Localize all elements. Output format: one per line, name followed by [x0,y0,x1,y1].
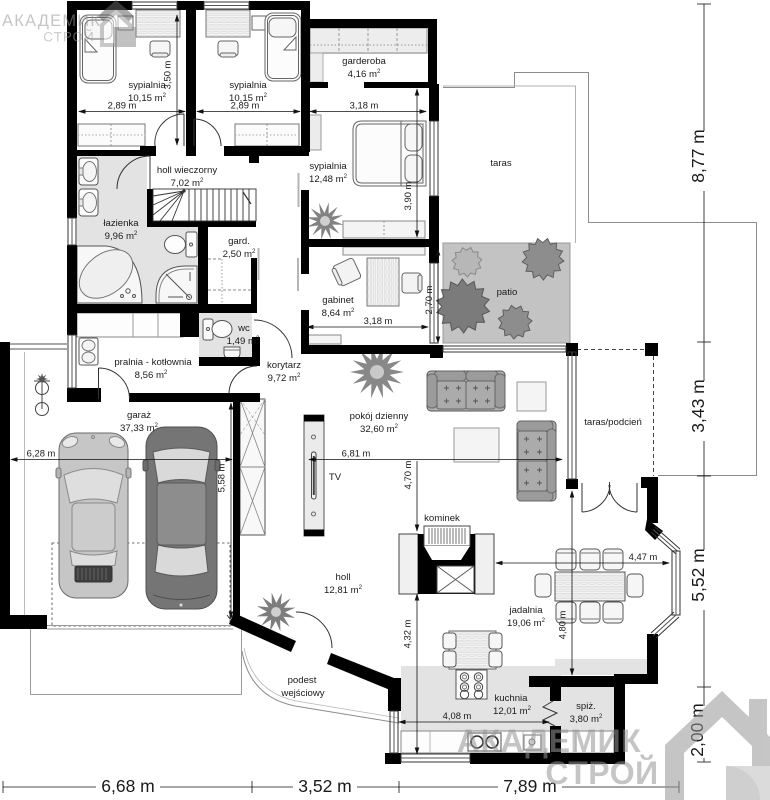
svg-text:TV: TV [329,472,342,483]
svg-text:12,81 m2: 12,81 m2 [324,585,363,596]
svg-text:5,58 m: 5,58 m [216,463,227,492]
svg-text:taras: taras [490,158,512,169]
svg-text:5,52 m: 5,52 m [688,548,708,602]
svg-text:wc: wc [237,323,250,334]
svg-text:patio: patio [497,287,518,298]
svg-text:podest: podest [288,675,317,686]
svg-text:sypialnia: sypialnia [309,161,347,172]
svg-text:pokój dzienny: pokój dzienny [350,411,409,422]
svg-text:kuchnia: kuchnia [494,693,528,704]
svg-text:8,64 m2: 8,64 m2 [322,308,355,319]
svg-text:kominek: kominek [424,513,460,524]
svg-text:jadalnia: jadalnia [508,605,543,616]
svg-text:4,70 m: 4,70 m [402,460,413,489]
svg-text:8,56 m2: 8,56 m2 [135,370,168,381]
svg-text:10,15 m2: 10,15 m2 [229,93,268,104]
svg-text:4,16 m2: 4,16 m2 [348,69,381,80]
svg-text:sypialnia: sypialnia [229,80,267,91]
svg-text:6,68 m: 6,68 m [101,776,155,796]
svg-text:СТРОЙ: СТРОЙ [545,755,658,791]
svg-text:СТРОЙ: СТРОЙ [43,30,94,45]
svg-text:АКАДЕМИК: АКАДЕМИК [457,723,641,759]
svg-text:2,50 m2: 2,50 m2 [223,249,256,260]
svg-text:holl wieczorny: holl wieczorny [157,165,217,176]
svg-text:3,18 m: 3,18 m [364,315,393,326]
svg-text:korytarz: korytarz [267,360,301,371]
svg-text:12,48 m2: 12,48 m2 [309,174,348,185]
svg-text:łazienka: łazienka [103,218,139,229]
svg-text:spiż.: spiż. [576,701,596,712]
svg-text:1,49 m2: 1,49 m2 [227,336,260,347]
svg-text:37,33 m2: 37,33 m2 [120,423,159,434]
svg-text:gabinet: gabinet [322,295,354,306]
svg-text:6,81 m: 6,81 m [342,448,371,459]
svg-text:holl: holl [336,572,351,583]
svg-text:3,90 m: 3,90 m [402,181,413,210]
svg-text:АКАДЕМИК: АКАДЕМИК [2,12,101,30]
svg-text:4,32 m: 4,32 m [402,619,413,648]
svg-text:wejściowy: wejściowy [280,688,324,699]
svg-text:garderoba: garderoba [342,56,386,67]
svg-text:9,96 m2: 9,96 m2 [105,231,138,242]
svg-text:6,28 m: 6,28 m [27,448,56,459]
svg-text:garaż: garaż [127,410,151,421]
svg-text:pralnia - kotłownia: pralnia - kotłownia [114,357,192,368]
svg-text:19,06 m2: 19,06 m2 [507,618,546,629]
svg-text:32,60 m2: 32,60 m2 [360,424,399,435]
svg-text:3,52 m: 3,52 m [298,776,352,796]
svg-text:3,43 m: 3,43 m [688,379,708,433]
svg-text:3,18 m: 3,18 m [350,100,379,111]
svg-text:4,47 m: 4,47 m [629,551,658,562]
svg-text:taras/podcień: taras/podcień [584,417,642,428]
svg-text:9,72 m2: 9,72 m2 [268,373,301,384]
svg-text:7,02 m2: 7,02 m2 [171,178,204,189]
svg-text:4,08 m: 4,08 m [443,710,472,721]
svg-text:2,70 m: 2,70 m [423,285,434,314]
svg-text:8,77 m: 8,77 m [688,129,708,183]
svg-text:10,15 m2: 10,15 m2 [128,93,167,104]
svg-text:4,80 m: 4,80 m [557,610,568,639]
svg-text:sypialnia: sypialnia [128,80,166,91]
svg-text:gard.: gard. [228,236,250,247]
svg-text:12,01 m2: 12,01 m2 [493,706,532,717]
